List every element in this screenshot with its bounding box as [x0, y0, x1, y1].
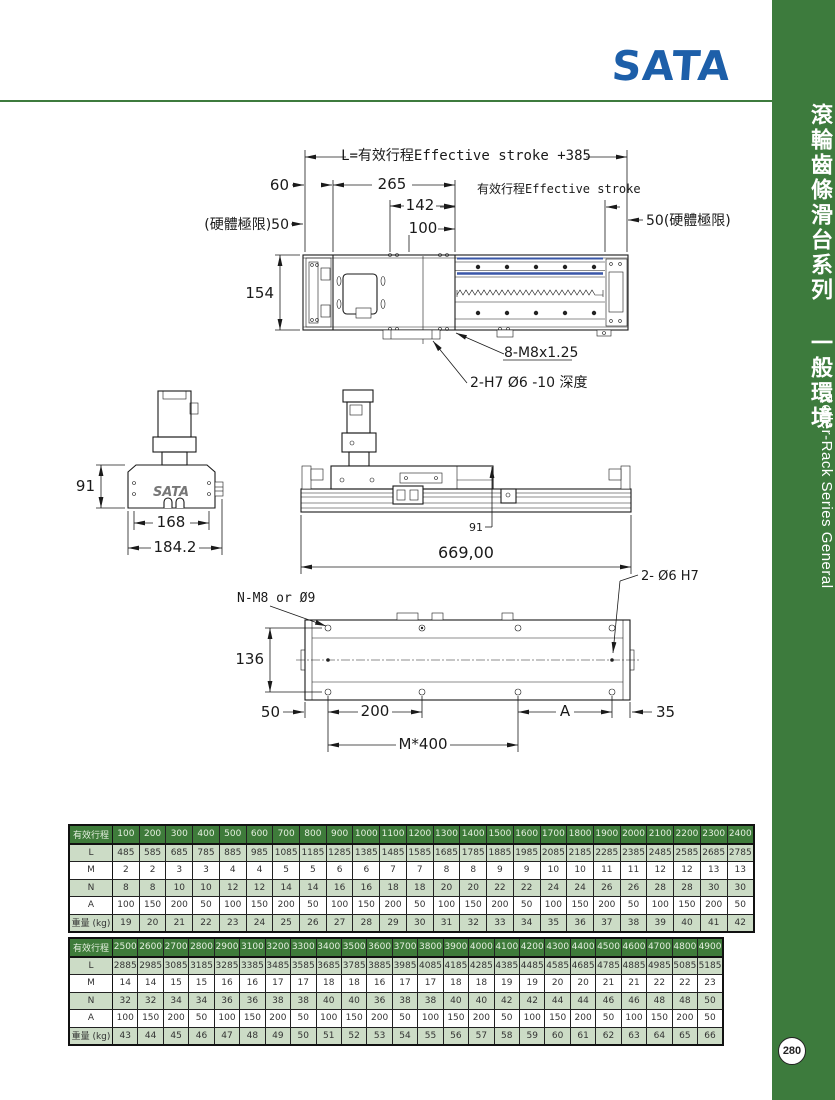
- value-cell: 58: [494, 1027, 519, 1045]
- embossed-logo: SATA: [153, 485, 189, 500]
- value-cell: 100: [219, 897, 246, 915]
- value-cell: 48: [647, 992, 672, 1010]
- value-cell: 40: [443, 992, 468, 1010]
- value-cell: 29: [380, 914, 407, 932]
- value-cell: 36: [367, 992, 392, 1010]
- stroke-col-header: 600: [246, 825, 273, 844]
- value-cell: 3485: [265, 957, 290, 975]
- value-cell: 34: [513, 914, 540, 932]
- value-cell: 100: [326, 897, 353, 915]
- value-cell: 50: [494, 1010, 519, 1028]
- value-cell: 18: [380, 879, 407, 897]
- stroke-col-header: 1700: [540, 825, 567, 844]
- value-cell: 50: [392, 1010, 417, 1028]
- value-cell: 2485: [647, 844, 674, 862]
- value-cell: 19: [113, 914, 140, 932]
- spec-table-2-wrap: 有效行程250026002700280029003100320033003400…: [68, 937, 724, 1046]
- top-view-drawing: L=有效行程Effective stroke +385 60 265 142 1…: [204, 148, 731, 391]
- value-cell: 49: [265, 1027, 290, 1045]
- value-cell: 20: [570, 975, 595, 993]
- row-header: 重量 (kg): [69, 914, 113, 932]
- value-cell: 150: [545, 1010, 570, 1028]
- stroke-col-header: 1800: [567, 825, 594, 844]
- value-cell: 3685: [316, 957, 341, 975]
- value-cell: 24: [567, 879, 594, 897]
- value-cell: 3: [166, 862, 193, 880]
- value-cell: 1885: [487, 844, 514, 862]
- value-cell: 7: [380, 862, 407, 880]
- value-cell: 5: [300, 862, 327, 880]
- value-cell: 3285: [214, 957, 239, 975]
- value-cell: 47: [214, 1027, 239, 1045]
- row-header: N: [69, 879, 113, 897]
- value-cell: 9: [513, 862, 540, 880]
- callout-n-label: N-M8 or Ø9: [237, 591, 315, 606]
- value-cell: 200: [593, 897, 620, 915]
- stroke-col-header: 1500: [487, 825, 514, 844]
- value-cell: 30: [406, 914, 433, 932]
- value-cell: 17: [265, 975, 290, 993]
- value-cell: 8: [460, 862, 487, 880]
- value-cell: 200: [367, 1010, 392, 1028]
- dim-265-label: 265: [378, 175, 407, 193]
- stroke-col-header: 4000: [469, 938, 494, 957]
- limit-right-label: 50(硬體極限): [646, 213, 731, 229]
- table-row: A100150200501001502005010015020050100150…: [69, 897, 754, 915]
- stroke-col-header: 3800: [418, 938, 443, 957]
- value-cell: 35: [540, 914, 567, 932]
- value-cell: 200: [273, 897, 300, 915]
- value-cell: 51: [316, 1027, 341, 1045]
- dim-142-label: 142: [406, 196, 435, 214]
- value-cell: 200: [672, 1010, 697, 1028]
- value-cell: 985: [246, 844, 273, 862]
- value-cell: 2: [139, 862, 166, 880]
- value-cell: 33: [487, 914, 514, 932]
- value-cell: 12: [674, 862, 701, 880]
- dim-200-label: 200: [361, 702, 390, 720]
- value-cell: 16: [214, 975, 239, 993]
- stroke-col-header: 200: [139, 825, 166, 844]
- value-cell: 150: [443, 1010, 468, 1028]
- value-cell: 3385: [240, 957, 265, 975]
- value-cell: 4885: [621, 957, 646, 975]
- value-cell: 11: [620, 862, 647, 880]
- value-cell: 3985: [392, 957, 417, 975]
- value-cell: 785: [193, 844, 220, 862]
- stroke-col-header: 3700: [392, 938, 417, 957]
- value-cell: 66: [698, 1027, 723, 1045]
- dim-184-label: 184.2: [154, 538, 197, 556]
- value-cell: 200: [265, 1010, 290, 1028]
- value-cell: 885: [219, 844, 246, 862]
- value-cell: 45: [163, 1027, 188, 1045]
- value-cell: 48: [672, 992, 697, 1010]
- value-cell: 22: [193, 914, 220, 932]
- value-cell: 6: [353, 862, 380, 880]
- table-row: M22334455667788991010111112121313: [69, 862, 754, 880]
- value-cell: 17: [392, 975, 417, 993]
- value-cell: 2885: [113, 957, 138, 975]
- value-cell: 150: [353, 897, 380, 915]
- value-cell: 200: [166, 897, 193, 915]
- table-row: M141415151616171718181617171818191920202…: [69, 975, 723, 993]
- value-cell: 1285: [326, 844, 353, 862]
- value-cell: 4: [246, 862, 273, 880]
- row-header: 重量 (kg): [69, 1027, 113, 1045]
- value-cell: 12: [647, 862, 674, 880]
- value-cell: 50: [596, 1010, 621, 1028]
- stroke-col-header: 3300: [291, 938, 316, 957]
- sidebar-title-en: Roller-Rack Series General: [772, 393, 835, 589]
- value-cell: 2785: [727, 844, 754, 862]
- value-cell: 42: [520, 992, 545, 1010]
- value-cell: 200: [570, 1010, 595, 1028]
- value-cell: 1785: [460, 844, 487, 862]
- value-cell: 23: [219, 914, 246, 932]
- end-view-drawing: SATA 91 168 184.2: [76, 391, 223, 556]
- value-cell: 19: [520, 975, 545, 993]
- value-cell: 36: [214, 992, 239, 1010]
- value-cell: 26: [300, 914, 327, 932]
- value-cell: 100: [647, 897, 674, 915]
- spec-table-1-wrap: 有效行程100200300400500600700800900100011001…: [68, 824, 755, 933]
- value-cell: 585: [139, 844, 166, 862]
- limit-left-label: (硬體極限)50: [204, 217, 289, 233]
- value-cell: 50: [698, 1010, 723, 1028]
- value-cell: 150: [139, 897, 166, 915]
- stroke-col-header: 2100: [647, 825, 674, 844]
- value-cell: 20: [545, 975, 570, 993]
- value-cell: 100: [621, 1010, 646, 1028]
- stroke-row-header: 有效行程: [69, 825, 113, 844]
- table-row: A100150200501001502005010015020050100150…: [69, 1010, 723, 1028]
- dim-669-label: 669,00: [438, 543, 494, 562]
- value-cell: 4485: [520, 957, 545, 975]
- value-cell: 5085: [672, 957, 697, 975]
- value-cell: 6: [326, 862, 353, 880]
- value-cell: 20: [460, 879, 487, 897]
- value-cell: 42: [727, 914, 754, 932]
- value-cell: 150: [138, 1010, 163, 1028]
- dim-168-label: 168: [157, 513, 186, 531]
- stroke-col-header: 2200: [674, 825, 701, 844]
- value-cell: 40: [674, 914, 701, 932]
- value-cell: 18: [406, 879, 433, 897]
- value-cell: 150: [341, 1010, 366, 1028]
- value-cell: 150: [460, 897, 487, 915]
- stroke-col-header: 1900: [593, 825, 620, 844]
- value-cell: 23: [698, 975, 723, 993]
- value-cell: 3085: [163, 957, 188, 975]
- value-cell: 59: [520, 1027, 545, 1045]
- value-cell: 1485: [380, 844, 407, 862]
- row-header: A: [69, 1010, 113, 1028]
- technical-drawings: L=有效行程Effective stroke +385 60 265 142 1…: [0, 0, 772, 810]
- value-cell: 16: [353, 879, 380, 897]
- row-header: N: [69, 992, 113, 1010]
- value-cell: 37: [593, 914, 620, 932]
- value-cell: 65: [672, 1027, 697, 1045]
- stroke-col-header: 2500: [113, 938, 138, 957]
- stroke-col-header: 1600: [513, 825, 540, 844]
- value-cell: 50: [727, 897, 754, 915]
- value-cell: 8: [113, 879, 140, 897]
- value-cell: 46: [189, 1027, 214, 1045]
- value-cell: 17: [291, 975, 316, 993]
- value-cell: 46: [621, 992, 646, 1010]
- value-cell: 34: [163, 992, 188, 1010]
- table-row: 重量 (kg)434445464748495051525354555657585…: [69, 1027, 723, 1045]
- value-cell: 200: [487, 897, 514, 915]
- stroke-col-header: 4800: [672, 938, 697, 957]
- value-cell: 14: [138, 975, 163, 993]
- value-cell: 24: [540, 879, 567, 897]
- value-cell: 50: [406, 897, 433, 915]
- value-cell: 30: [727, 879, 754, 897]
- value-cell: 7: [406, 862, 433, 880]
- value-cell: 16: [326, 879, 353, 897]
- value-cell: 100: [520, 1010, 545, 1028]
- value-cell: 2385: [620, 844, 647, 862]
- stroke-col-header: 100: [113, 825, 140, 844]
- value-cell: 4: [219, 862, 246, 880]
- value-cell: 50: [291, 1027, 316, 1045]
- value-cell: 46: [596, 992, 621, 1010]
- value-cell: 61: [570, 1027, 595, 1045]
- dim-154-label: 154: [245, 284, 274, 302]
- value-cell: 685: [166, 844, 193, 862]
- value-cell: 18: [341, 975, 366, 993]
- value-cell: 100: [540, 897, 567, 915]
- value-cell: 2985: [138, 957, 163, 975]
- value-cell: 18: [443, 975, 468, 993]
- stroke-col-header: 3900: [443, 938, 468, 957]
- value-cell: 26: [593, 879, 620, 897]
- value-cell: 13: [700, 862, 727, 880]
- stroke-col-header: 4300: [545, 938, 570, 957]
- value-cell: 24: [246, 914, 273, 932]
- value-cell: 4585: [545, 957, 570, 975]
- stroke-col-header: 4200: [520, 938, 545, 957]
- stroke-col-header: 1300: [433, 825, 460, 844]
- value-cell: 2285: [593, 844, 620, 862]
- table-row: L288529853085318532853385348535853685378…: [69, 957, 723, 975]
- bottom-view-drawing: N-M8 or Ø9 136 50 200 A 35: [235, 591, 675, 753]
- stroke-col-header: 300: [166, 825, 193, 844]
- value-cell: 63: [621, 1027, 646, 1045]
- stroke-col-header: 1100: [380, 825, 407, 844]
- value-cell: 34: [189, 992, 214, 1010]
- value-cell: 21: [166, 914, 193, 932]
- value-cell: 54: [392, 1027, 417, 1045]
- dim-100-label: 100: [409, 219, 438, 237]
- value-cell: 1185: [300, 844, 327, 862]
- value-cell: 30: [700, 879, 727, 897]
- side-view-drawing: 91 669,00 2- Ø6 H7: [301, 390, 699, 653]
- value-cell: 22: [672, 975, 697, 993]
- value-cell: 4385: [494, 957, 519, 975]
- value-cell: 1985: [513, 844, 540, 862]
- stroke-col-header: 900: [326, 825, 353, 844]
- value-cell: 3185: [189, 957, 214, 975]
- value-cell: 2085: [540, 844, 567, 862]
- value-cell: 4985: [647, 957, 672, 975]
- value-cell: 52: [341, 1027, 366, 1045]
- value-cell: 100: [113, 1010, 138, 1028]
- sidebar-title-zh: 滾輪齒條滑台系列 一般環境: [772, 103, 835, 431]
- value-cell: 36: [567, 914, 594, 932]
- value-cell: 18: [469, 975, 494, 993]
- value-cell: 10: [193, 879, 220, 897]
- value-cell: 8: [433, 862, 460, 880]
- value-cell: 62: [596, 1027, 621, 1045]
- value-cell: 22: [487, 879, 514, 897]
- table-row: N323234343636383840403638384040424244444…: [69, 992, 723, 1010]
- value-cell: 36: [240, 992, 265, 1010]
- stroke-col-header: 3200: [265, 938, 290, 957]
- value-cell: 40: [341, 992, 366, 1010]
- stroke-col-header: 3600: [367, 938, 392, 957]
- value-cell: 50: [291, 1010, 316, 1028]
- stroke-col-header: 2700: [163, 938, 188, 957]
- value-cell: 100: [113, 897, 140, 915]
- value-cell: 48: [240, 1027, 265, 1045]
- value-cell: 64: [647, 1027, 672, 1045]
- dim-total-label: L=有效行程Effective stroke +385: [341, 148, 591, 164]
- value-cell: 16: [367, 975, 392, 993]
- value-cell: 50: [620, 897, 647, 915]
- stroke-col-header: 2900: [214, 938, 239, 957]
- value-cell: 32: [113, 992, 138, 1010]
- value-cell: 50: [189, 1010, 214, 1028]
- value-cell: 100: [433, 897, 460, 915]
- value-cell: 21: [596, 975, 621, 993]
- stroke-col-header: 4600: [621, 938, 646, 957]
- value-cell: 21: [621, 975, 646, 993]
- value-cell: 100: [214, 1010, 239, 1028]
- value-cell: 10: [567, 862, 594, 880]
- value-cell: 17: [418, 975, 443, 993]
- value-cell: 32: [138, 992, 163, 1010]
- row-header: L: [69, 957, 113, 975]
- dim-91-side-label: 91: [469, 521, 483, 534]
- stroke-col-header: 2000: [620, 825, 647, 844]
- value-cell: 42: [494, 992, 519, 1010]
- value-cell: 1685: [433, 844, 460, 862]
- dim-50-label: 50: [261, 703, 280, 721]
- value-cell: 485: [113, 844, 140, 862]
- value-cell: 12: [246, 879, 273, 897]
- value-cell: 50: [513, 897, 540, 915]
- stroke-label: 有效行程Effective stroke: [477, 181, 641, 196]
- value-cell: 50: [193, 897, 220, 915]
- spec-table-1: 有效行程100200300400500600700800900100011001…: [68, 824, 755, 933]
- page-number: 280: [783, 1045, 801, 1057]
- value-cell: 8: [139, 879, 166, 897]
- value-cell: 4185: [443, 957, 468, 975]
- stroke-col-header: 1000: [353, 825, 380, 844]
- dim-136-label: 136: [235, 650, 264, 668]
- value-cell: 11: [593, 862, 620, 880]
- stroke-col-header: 3500: [341, 938, 366, 957]
- value-cell: 2585: [674, 844, 701, 862]
- value-cell: 53: [367, 1027, 392, 1045]
- value-cell: 1585: [406, 844, 433, 862]
- value-cell: 20: [139, 914, 166, 932]
- value-cell: 150: [647, 1010, 672, 1028]
- value-cell: 28: [647, 879, 674, 897]
- callout-dowel-label: 2- Ø6 H7: [641, 569, 699, 584]
- value-cell: 14: [300, 879, 327, 897]
- stroke-col-header: 3400: [316, 938, 341, 957]
- page-number-badge: 280: [778, 1037, 806, 1065]
- value-cell: 2685: [700, 844, 727, 862]
- value-cell: 60: [545, 1027, 570, 1045]
- value-cell: 200: [380, 897, 407, 915]
- value-cell: 150: [674, 897, 701, 915]
- value-cell: 4785: [596, 957, 621, 975]
- value-cell: 44: [570, 992, 595, 1010]
- value-cell: 20: [433, 879, 460, 897]
- value-cell: 25: [273, 914, 300, 932]
- dim-91-end-label: 91: [76, 477, 95, 495]
- datasheet-page: SATA: [0, 0, 835, 1100]
- stroke-col-header: 1200: [406, 825, 433, 844]
- value-cell: 22: [513, 879, 540, 897]
- stroke-col-header: 3100: [240, 938, 265, 957]
- value-cell: 26: [620, 879, 647, 897]
- value-cell: 200: [700, 897, 727, 915]
- value-cell: 200: [163, 1010, 188, 1028]
- value-cell: 10: [166, 879, 193, 897]
- value-cell: 15: [163, 975, 188, 993]
- value-cell: 3885: [367, 957, 392, 975]
- stroke-col-header: 4700: [647, 938, 672, 957]
- stroke-col-header: 400: [193, 825, 220, 844]
- value-cell: 4085: [418, 957, 443, 975]
- value-cell: 38: [620, 914, 647, 932]
- dim-35-label: 35: [656, 703, 675, 721]
- value-cell: 39: [647, 914, 674, 932]
- stroke-col-header: 4100: [494, 938, 519, 957]
- value-cell: 9: [487, 862, 514, 880]
- value-cell: 150: [567, 897, 594, 915]
- value-cell: 31: [433, 914, 460, 932]
- value-cell: 19: [494, 975, 519, 993]
- value-cell: 38: [392, 992, 417, 1010]
- sidebar: 滾輪齒條滑台系列 一般環境 Roller-Rack Series General: [772, 0, 835, 1100]
- dim-60-label: 60: [270, 176, 289, 194]
- value-cell: 28: [353, 914, 380, 932]
- stroke-col-header: 2400: [727, 825, 754, 844]
- value-cell: 3: [193, 862, 220, 880]
- value-cell: 150: [246, 897, 273, 915]
- dim-a-label: A: [560, 702, 571, 720]
- value-cell: 14: [273, 879, 300, 897]
- value-cell: 15: [189, 975, 214, 993]
- value-cell: 28: [674, 879, 701, 897]
- table-row: N881010121214141616181820202222242426262…: [69, 879, 754, 897]
- value-cell: 44: [545, 992, 570, 1010]
- stroke-col-header: 1400: [460, 825, 487, 844]
- stroke-col-header: 2800: [189, 938, 214, 957]
- value-cell: 40: [469, 992, 494, 1010]
- value-cell: 5: [273, 862, 300, 880]
- value-cell: 38: [265, 992, 290, 1010]
- stroke-col-header: 4500: [596, 938, 621, 957]
- stroke-row-header: 有效行程: [69, 938, 113, 957]
